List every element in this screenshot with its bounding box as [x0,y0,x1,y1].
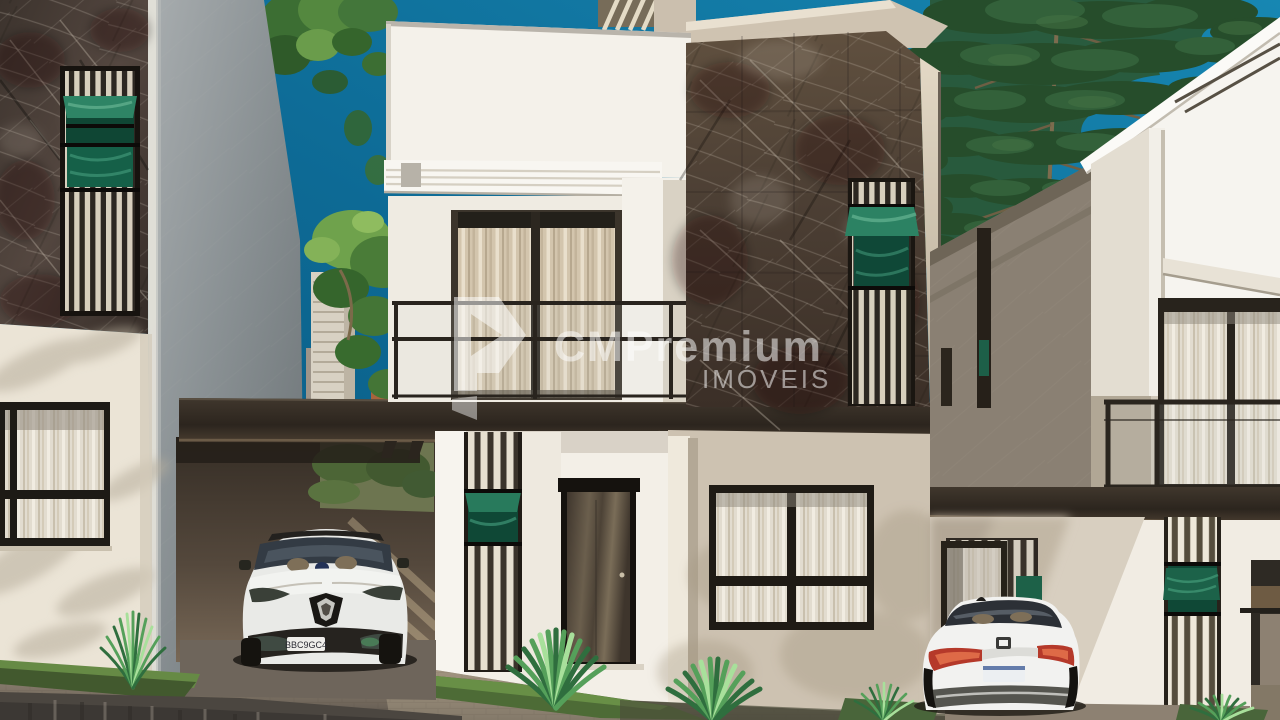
svg-text:IMÓVEIS: IMÓVEIS [702,364,831,394]
svg-text:BBC9GC4: BBC9GC4 [285,640,327,650]
